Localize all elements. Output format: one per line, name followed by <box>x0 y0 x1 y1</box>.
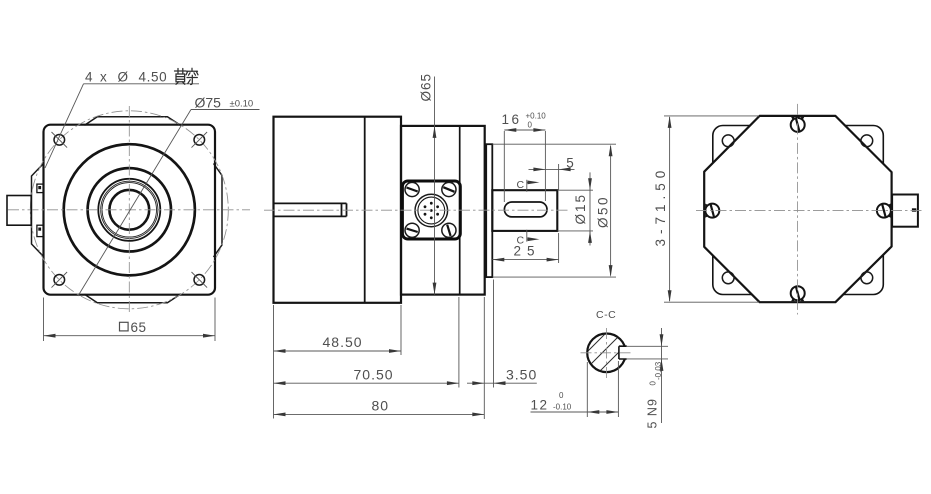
svg-text:Ø15: Ø15 <box>573 193 588 225</box>
svg-text:Ø50: Ø50 <box>596 195 611 228</box>
svg-text:5: 5 <box>566 156 574 171</box>
svg-text:0: 0 <box>559 391 564 400</box>
svg-text:-0.10: -0.10 <box>553 403 572 412</box>
svg-text:C-C: C-C <box>596 309 616 321</box>
svg-text:70.50: 70.50 <box>354 366 394 382</box>
svg-text:±0.10: ±0.10 <box>230 99 254 110</box>
svg-text:0: 0 <box>649 381 658 386</box>
svg-text:48.50: 48.50 <box>323 334 363 350</box>
svg-text:65: 65 <box>131 320 147 335</box>
svg-text:0: 0 <box>528 121 533 130</box>
svg-text:12: 12 <box>531 398 549 413</box>
svg-text:5 N9: 5 N9 <box>646 398 660 428</box>
svg-text:80: 80 <box>372 397 390 413</box>
svg-text:-0.03: -0.03 <box>654 361 663 380</box>
svg-text:+0.10: +0.10 <box>526 112 547 121</box>
svg-text:25: 25 <box>514 244 541 259</box>
svg-text:C: C <box>517 179 525 191</box>
svg-text:3.50: 3.50 <box>506 366 537 382</box>
svg-text:Ø75: Ø75 <box>195 95 222 111</box>
svg-text:16: 16 <box>502 112 522 127</box>
svg-text:3-71.50: 3-71.50 <box>653 166 668 247</box>
svg-text:Ø65: Ø65 <box>419 73 434 102</box>
